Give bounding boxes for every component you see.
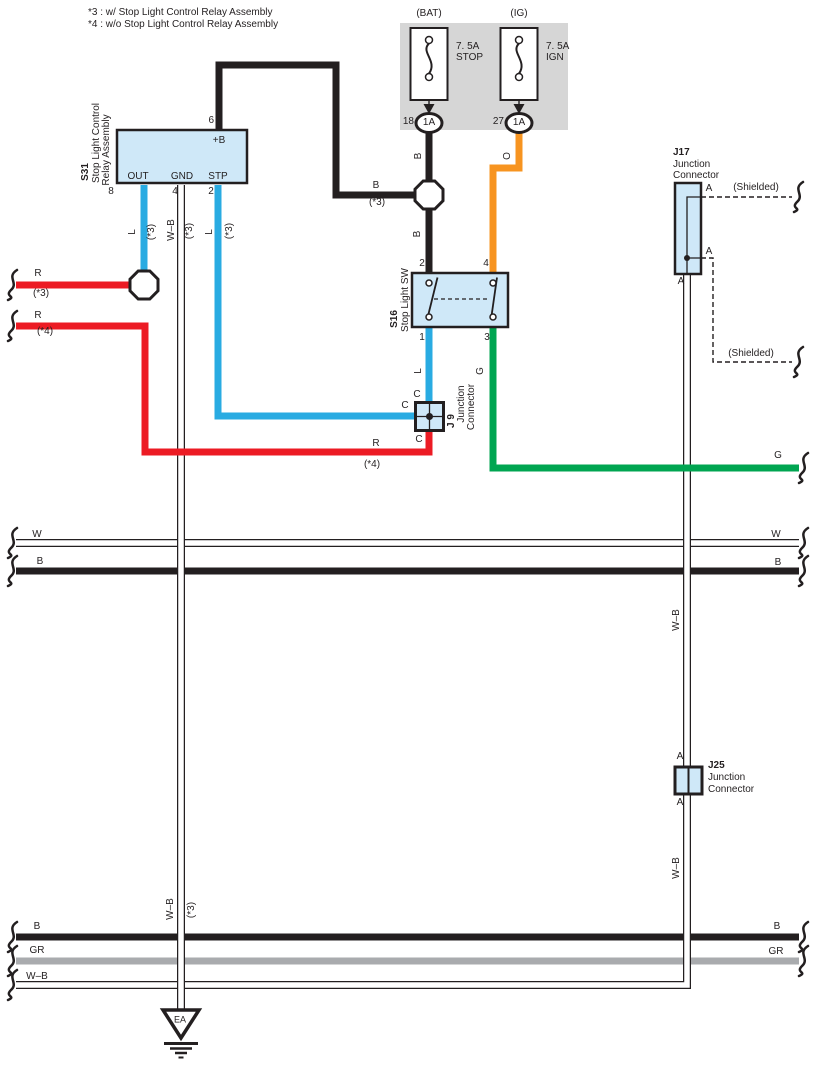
bus-b-label-right: B <box>775 558 782 568</box>
wire-break-icon <box>8 311 17 341</box>
wire-r-star4 <box>16 326 429 452</box>
wire-b-branch <box>219 65 429 195</box>
j9-cavity-bottom: C <box>415 435 422 445</box>
wire-label-g-right: G <box>774 451 782 461</box>
fuse-bat-rating: 7. 5A <box>456 42 479 52</box>
bus-wb-label-left: W–B <box>26 972 48 982</box>
j9-box <box>416 403 444 431</box>
wire-break-icon <box>8 556 17 586</box>
wire-label-l-out: L <box>128 229 138 235</box>
s31-terminal-stp: STP <box>208 172 227 182</box>
wire-break-icon <box>799 453 808 483</box>
j9-cavity-left: C <box>401 401 408 411</box>
wire-l-stp <box>218 185 415 416</box>
wire-label-b-lower: B <box>413 231 423 238</box>
s31-pin-2: 2 <box>208 187 214 197</box>
wire-label-o: O <box>503 152 513 160</box>
j17-cavity-bottom: A <box>678 277 685 287</box>
s31-id: S31 <box>81 163 91 181</box>
s16-name: Stop Light SW <box>401 268 411 332</box>
wire-label-r-star3: R <box>34 269 41 279</box>
j17-name-line1: Junction <box>673 160 710 170</box>
j17-cavity-top: A <box>706 184 713 194</box>
fuse-bat-terminal: (BAT) <box>416 9 441 19</box>
wire-break-icon <box>794 182 803 212</box>
octagon-connector-b <box>415 181 443 209</box>
bus-w-label-left: W <box>32 530 41 540</box>
j17-id: J17 <box>673 148 690 158</box>
wire-label-v3-branch: (*3) <box>369 198 385 208</box>
s31-terminal-plus-b: +B <box>213 136 226 146</box>
s16-pin-2: 2 <box>419 259 425 269</box>
j25-cavity-bottom: A <box>677 798 684 808</box>
fuse-ig-circuit: IGN <box>546 53 564 63</box>
j17-cavity-mid: A <box>706 247 713 257</box>
wire-label-g-s16: G <box>476 367 486 375</box>
bus-gr-label-right: GR <box>769 947 784 957</box>
wire-label-b-branch: B <box>373 181 380 191</box>
wire-label-wb-gnd: W–B <box>167 219 177 241</box>
j25-id: J25 <box>708 761 725 771</box>
j25-name-line1: Junction <box>708 773 745 783</box>
j25-box <box>675 767 702 794</box>
wire-label-v3-out: (*3) <box>147 224 157 240</box>
fuse-ig-cavity: 1A <box>513 118 525 128</box>
wire-label-v3-stp: (*3) <box>225 223 235 239</box>
wb-wires <box>16 185 687 1010</box>
wire-label-v3-gnd: (*3) <box>185 223 195 239</box>
wire-label-r-j9: R <box>372 439 379 449</box>
wire-label-v4-r: (*4) <box>37 327 53 337</box>
bus-b-label-left: B <box>37 557 44 567</box>
j25-cavity-top: A <box>677 752 684 762</box>
wire-label-l-s16: L <box>414 368 424 374</box>
note-star3: *3 : w/ Stop Light Control Relay Assembl… <box>88 8 273 18</box>
fuse-bat-circuit: STOP <box>456 53 483 63</box>
shielded-label-1: (Shielded) <box>733 183 779 193</box>
wire-break-icon <box>8 270 17 300</box>
wire-label-wb-ground: W–B <box>166 898 176 920</box>
j17-box <box>675 183 701 274</box>
wire-label-l-stp: L <box>205 229 215 235</box>
wire-label-v3-r: (*3) <box>33 289 49 299</box>
j17-name-line2: Connector <box>673 171 719 181</box>
wire-break-icon <box>8 528 17 558</box>
s16-box <box>412 273 508 327</box>
s31-pin-8: 8 <box>108 187 114 197</box>
bus-gr-label-left: GR <box>30 946 45 956</box>
fuse-ig-rating: 7. 5A <box>546 42 569 52</box>
fuse-bat-pin: 18 <box>403 117 414 127</box>
wire-break-icon <box>799 556 808 586</box>
s16-id: S16 <box>390 310 400 328</box>
wire-label-wb-lower: W–B <box>672 857 682 879</box>
fuse-ig-terminal: (IG) <box>510 9 527 19</box>
j9-name-line2: Connector <box>467 384 477 430</box>
wire-label-v4-j9: (*4) <box>364 460 380 470</box>
s31-pin-4: 4 <box>172 187 178 197</box>
octagon-connector-r <box>130 271 158 299</box>
shielded-line-2 <box>701 258 792 362</box>
wire-label-v3-ground: (*3) <box>187 902 197 918</box>
s16-pin-3: 3 <box>484 333 490 343</box>
wire-label-b-upper: B <box>414 153 424 160</box>
note-star4: *4 : w/o Stop Light Control Relay Assemb… <box>88 20 278 30</box>
wire-label-r-star4: R <box>34 311 41 321</box>
wiring-diagram: *3 : w/ Stop Light Control Relay Assembl… <box>0 0 817 1067</box>
s31-pin-6: 6 <box>208 116 214 126</box>
shielded-label-2: (Shielded) <box>728 349 774 359</box>
bus-b-bottom-label-right: B <box>774 922 781 932</box>
s31-terminal-gnd: GND <box>171 172 193 182</box>
wire-label-wb-upper: W–B <box>672 609 682 631</box>
bus-b-bottom-label-left: B <box>34 922 41 932</box>
s31-terminal-out: OUT <box>127 172 148 182</box>
fuse-bat-cavity: 1A <box>423 118 435 128</box>
j25-name-line2: Connector <box>708 785 754 795</box>
bus-w-label-right: W <box>771 530 780 540</box>
s31-name-line2: Relay Assembly <box>102 114 112 185</box>
fuse-ig-pin: 27 <box>493 117 504 127</box>
j9-cavity-top: C <box>413 390 420 400</box>
wb-j17-wire <box>16 274 687 985</box>
s16-pin-4: 4 <box>483 259 489 269</box>
wire-break-icon <box>799 528 808 558</box>
s16-pin-1: 1 <box>419 333 425 343</box>
wire-break-icon <box>794 347 803 377</box>
ground-id: EA <box>174 1016 186 1025</box>
